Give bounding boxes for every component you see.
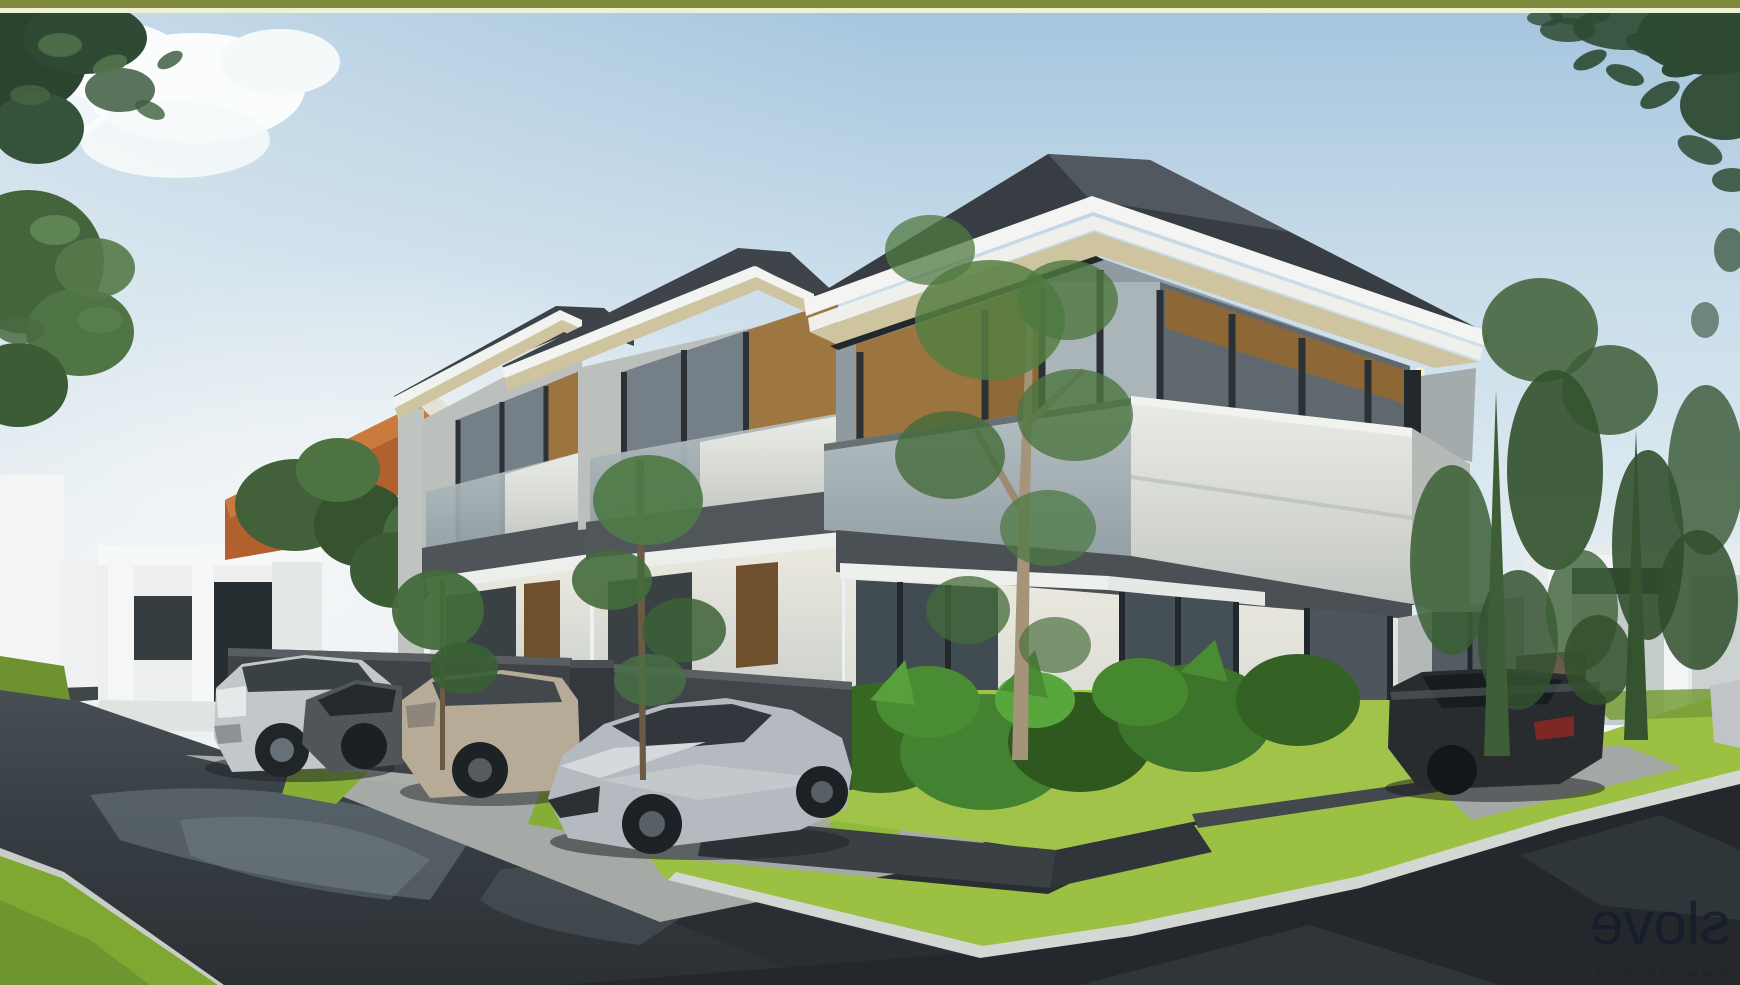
svg-text:www.slove.id: www.slove.id <box>1593 965 1729 982</box>
svg-text:slove: slove <box>1590 890 1730 957</box>
